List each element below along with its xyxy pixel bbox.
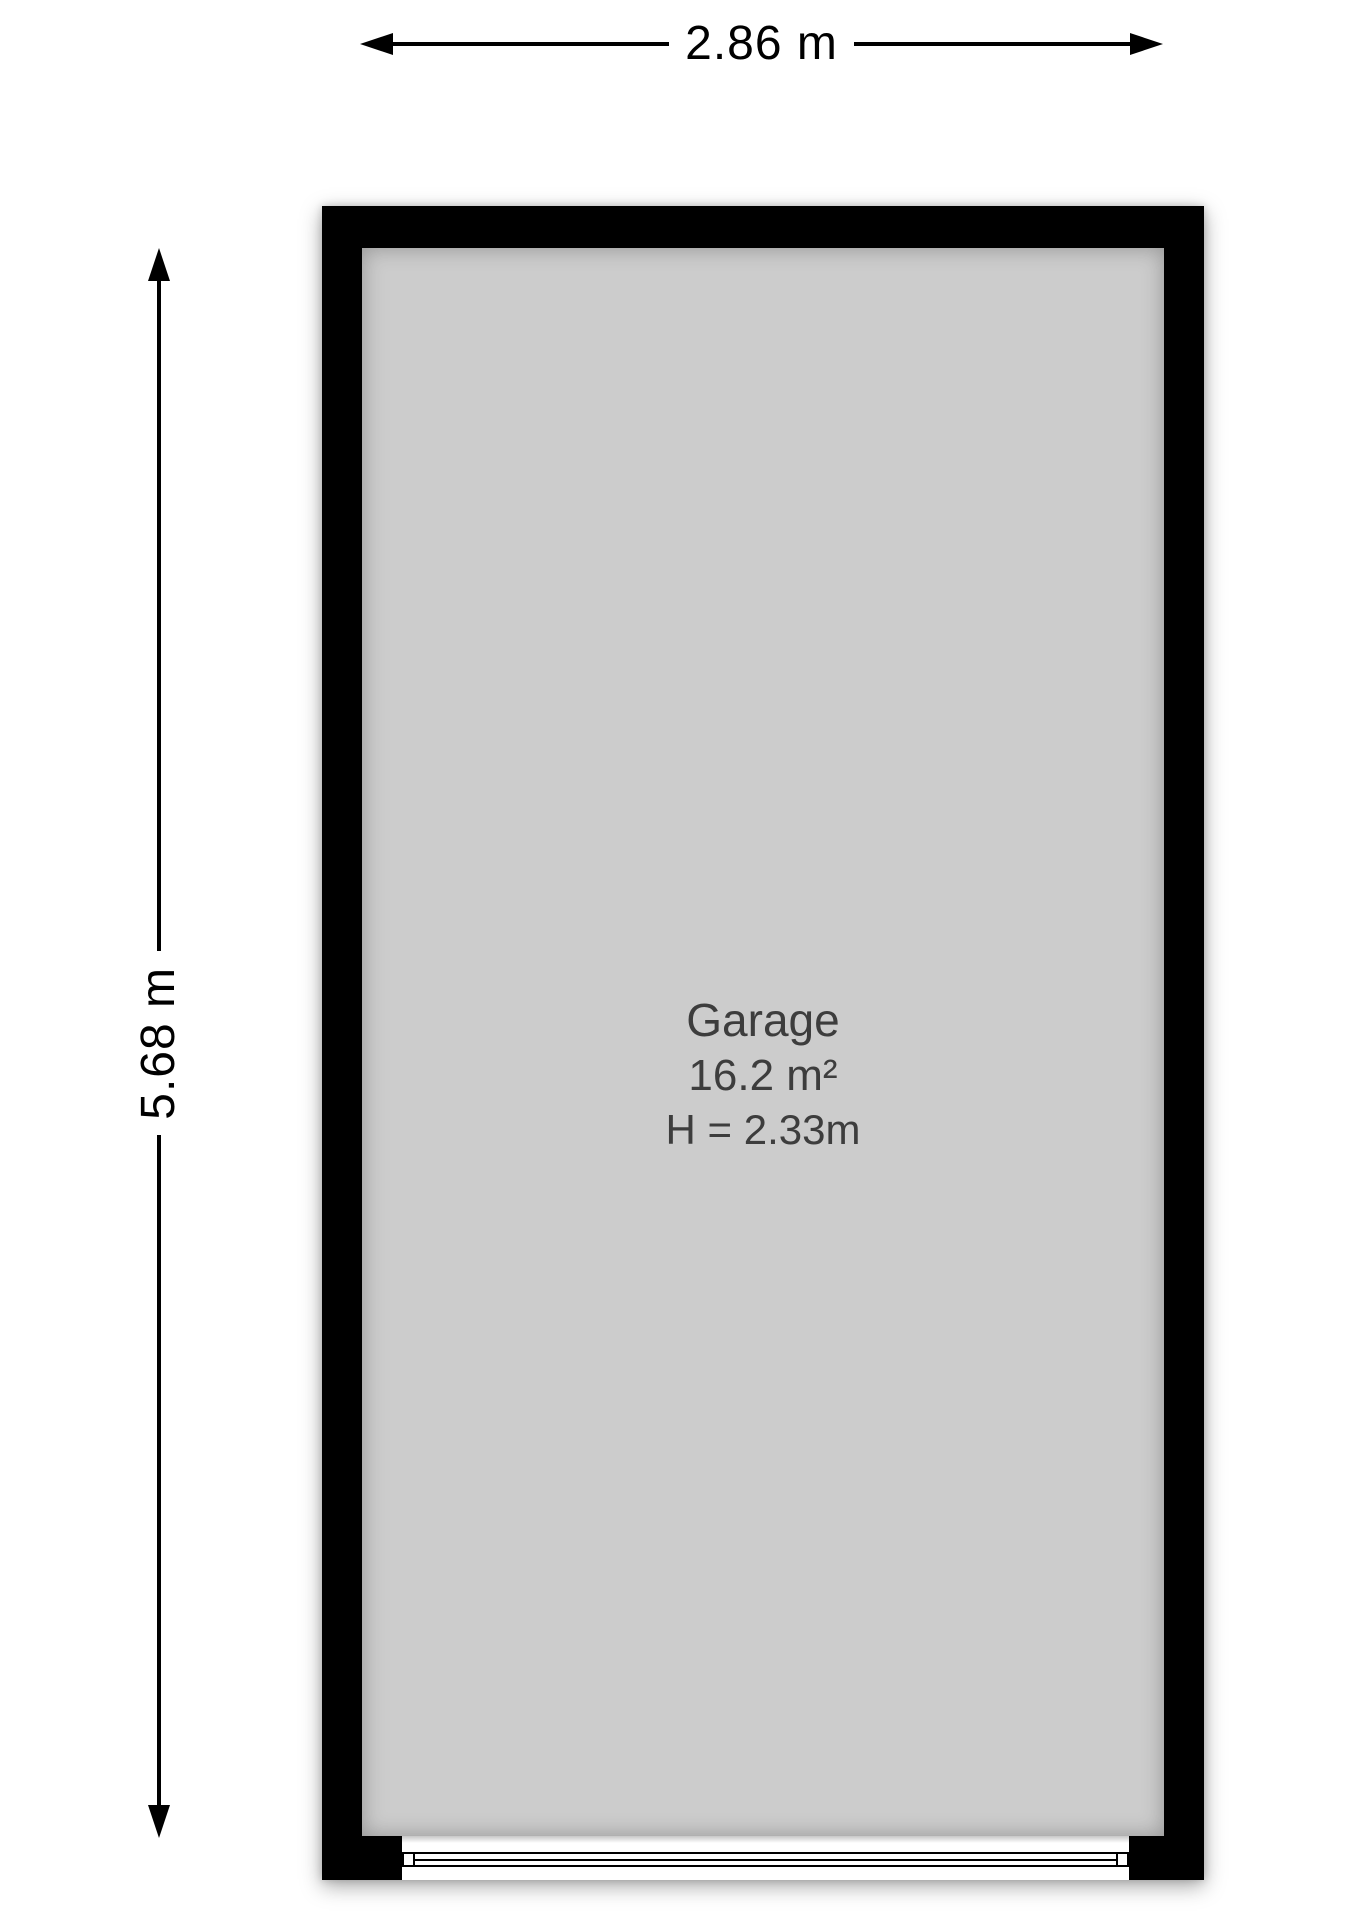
floorplan-canvas: 2.86 m 5.68 m Garage 16.2 m² H = 2.33m	[0, 0, 1358, 1920]
height-dimension-label: 5.68 m	[135, 951, 183, 1136]
room-floor: Garage 16.2 m² H = 2.33m	[362, 248, 1164, 1836]
width-dimension-label: 2.86 m	[669, 20, 854, 68]
dimension-line-left	[393, 42, 669, 46]
door-panel-line	[413, 1859, 1118, 1861]
dimension-line-right	[854, 42, 1130, 46]
garage-door-symbol	[402, 1852, 1129, 1867]
dimension-line-bottom	[157, 1135, 161, 1805]
door-end-cap-right	[1116, 1854, 1118, 1865]
height-dimension: 5.68 m	[137, 248, 181, 1838]
garage-door-opening	[402, 1836, 1129, 1880]
room-ceiling-height-label: H = 2.33m	[666, 1103, 861, 1156]
arrow-up-icon	[148, 248, 170, 281]
arrow-left-icon	[360, 33, 393, 55]
door-end-cap-left	[413, 1854, 415, 1865]
arrow-right-icon	[1130, 33, 1163, 55]
dimension-line-top	[157, 281, 161, 951]
room-name-label: Garage	[666, 993, 861, 1048]
arrow-down-icon	[148, 1805, 170, 1838]
room-label: Garage 16.2 m² H = 2.33m	[666, 993, 861, 1156]
room-garage: Garage 16.2 m² H = 2.33m	[322, 206, 1204, 1880]
room-area-label: 16.2 m²	[666, 1048, 861, 1103]
width-dimension: 2.86 m	[360, 17, 1163, 71]
